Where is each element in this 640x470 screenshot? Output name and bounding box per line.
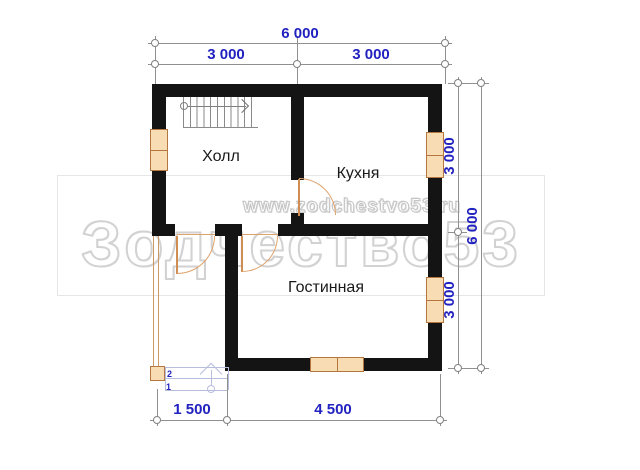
wall-right-1 [428,97,442,133]
terrace-post [150,366,165,381]
plan-layer: 2 1 Холл Кухня Гостинная 6 000 3 000 3 0… [0,0,640,470]
dim-label-right-total: 6 000 [465,194,481,258]
dim-line-top-total [148,43,452,44]
wall-bottom-left [225,358,311,371]
wall-terrace-divider [225,236,238,358]
room-label-kitchen: Кухня [318,165,398,183]
entrance-step-line-bottom [165,390,228,391]
dim-label-right-lower: 3 000 [442,268,458,332]
wall-bottom-right [363,358,442,371]
dim-line-bottom [150,420,447,421]
dim-marker [293,60,301,68]
dim-marker [441,39,449,47]
step-number-2: 2 [167,369,172,379]
dim-line-right-total [481,77,482,374]
dim-marker [477,364,485,372]
floor-plan: www.zodchestvo53.ru Зодчество53 [0,0,640,470]
dim-marker [454,228,462,236]
wall-mid-seg2 [215,224,242,236]
room-label-living: Гостинная [266,279,386,297]
wall-top [152,84,442,97]
door-threshold-terrace [177,234,215,235]
dim-label-bottom-right: 4 500 [303,402,363,418]
dim-marker [477,79,485,87]
dim-marker [454,79,462,87]
dim-label-top-right: 3 000 [341,47,401,63]
wall-hall-kitchen-divider [291,97,304,180]
dim-marker [151,39,159,47]
room-label-hall: Холл [181,148,261,166]
wall-mid-seg1 [152,224,175,236]
window-living-bottom [310,357,364,372]
window-hall-left [150,129,168,171]
entrance-arrow-circle [207,385,215,393]
dim-marker [454,364,462,372]
dim-line-right-halves [458,77,459,374]
entrance-step-line-mid [165,378,228,379]
dim-label-right-upper: 3 000 [442,124,458,188]
wall-mid-seg3 [278,224,442,236]
door-threshold-living [242,234,278,235]
dim-label-top-left: 3 000 [196,47,256,63]
entrance-step-edge-right [228,367,229,390]
dim-label-bottom-left: 1 500 [162,402,222,418]
stairs [183,97,258,128]
dim-label-top-total: 6 000 [270,26,330,42]
wall-right-3 [428,322,442,358]
dim-marker [153,416,161,424]
door-arc-terrace [177,236,215,274]
terrace-edge [153,236,159,367]
dim-marker [441,60,449,68]
door-arc-living [242,236,278,272]
wall-left-upper [152,97,166,130]
entrance-step-line-top [165,367,228,368]
entrance-arrow-line [211,370,212,386]
step-number-1: 1 [166,382,171,392]
dim-marker [436,416,444,424]
dim-marker [223,416,231,424]
dim-marker [151,60,159,68]
door-arc-kitchen [299,178,336,215]
